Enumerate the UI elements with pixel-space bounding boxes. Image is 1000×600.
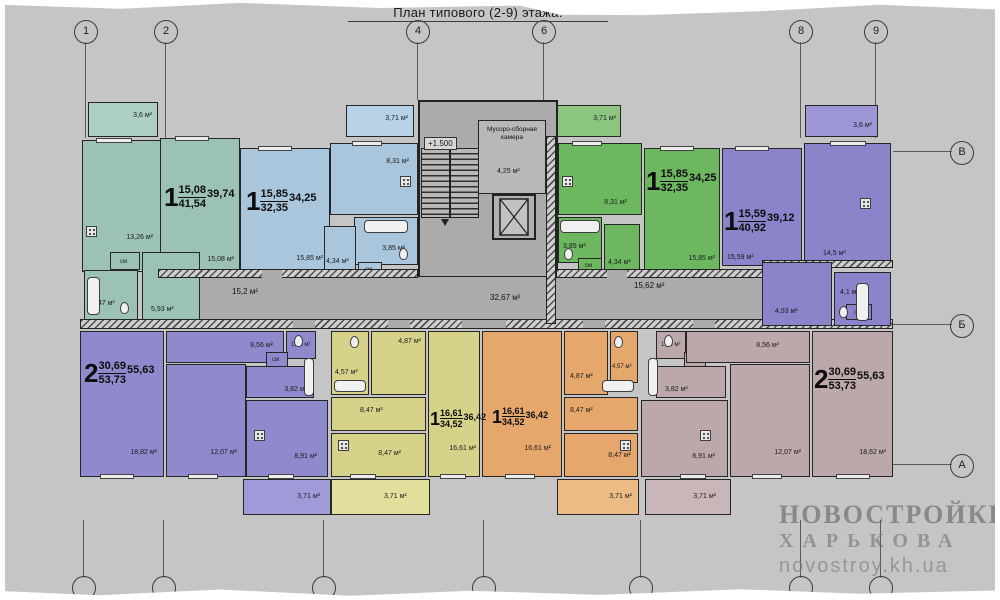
total-area: 32,35	[260, 202, 288, 215]
total-area: 34,52	[502, 417, 525, 427]
rooms-count: 1	[430, 410, 439, 428]
room-area: 3,6 м²	[133, 112, 152, 119]
corridor-area-center: 32,67 м²	[490, 293, 520, 302]
bathtub-icon	[602, 380, 634, 392]
room-area: 3,71 м²	[384, 493, 407, 500]
axis-line-bottom	[83, 520, 84, 578]
toilet-icon	[120, 302, 129, 314]
reduced-area: 39,74	[207, 188, 235, 200]
kitchen-top-mauve2: 8,56 м²	[686, 331, 810, 363]
axis-line-bottom	[483, 520, 484, 578]
window	[505, 474, 535, 479]
stair-direction-arrow	[441, 219, 449, 226]
living-area: 15,85	[260, 188, 288, 202]
axis-circle-4: 4	[406, 20, 430, 44]
room-area: 4,57 м²	[335, 369, 358, 376]
apartment-label-violet2: 2 30,6953,73 55,63	[84, 360, 155, 386]
toilet-icon	[350, 336, 359, 348]
hallway-teal: 5,93 м²	[142, 252, 200, 320]
room-area: 8,56 м²	[250, 342, 273, 349]
door-opening	[693, 320, 715, 328]
reduced-area: 55,63	[127, 364, 155, 376]
axis-line-2	[165, 42, 166, 138]
axis-circle-9: 9	[864, 20, 888, 44]
window	[752, 474, 782, 479]
room-area: 4,93 м²	[775, 308, 798, 315]
bearing-wall	[556, 269, 764, 278]
living-area: 30,69	[828, 366, 856, 380]
bathtub-icon	[648, 358, 658, 396]
total-area: 40,92	[738, 222, 766, 235]
watermark: НОВОСТРОЙКИ ХАРЬКОВА novostroy.kh.ua	[779, 501, 1000, 578]
hallway-purple: 4,93 м²	[762, 262, 832, 326]
room-area: 16,61 м²	[524, 445, 551, 452]
window	[352, 141, 382, 146]
room-area: 8,91 м²	[294, 453, 317, 460]
axis-line-8	[800, 42, 801, 138]
toilet-icon	[564, 248, 573, 260]
room-area: 3,71 м²	[609, 493, 632, 500]
toilet-icon	[614, 336, 623, 348]
room-area: 8,91 м²	[692, 453, 715, 460]
room-area: 12,07 м²	[210, 449, 237, 456]
window	[175, 136, 209, 141]
window	[268, 474, 294, 479]
floor-plan-scan: План типового (2-9) этажа. 1 2 4 6 8 9 В…	[0, 0, 1000, 600]
hall-top-yellow: 4,87 м²	[371, 331, 426, 395]
window	[660, 146, 694, 151]
reduced-area: 39,12	[767, 212, 795, 224]
balcony-purple: 3,6 м²	[805, 105, 878, 137]
corridor	[198, 276, 764, 324]
watermark-line1: НОВОСТРОЙКИ	[779, 501, 1000, 528]
bathtub-icon	[856, 283, 869, 321]
total-area: 41,54	[178, 198, 206, 211]
bathtub-icon	[334, 380, 366, 392]
window	[258, 146, 292, 151]
rooms-count: 1	[646, 168, 659, 194]
room-area: 8,31 м²	[386, 158, 409, 165]
total-area: 34,52	[440, 419, 463, 429]
closet-violet2: см	[266, 352, 288, 367]
watermark-line2: ХАРЬКОВА	[779, 528, 1000, 554]
window	[735, 146, 769, 151]
room-area: 13,26 м²	[126, 234, 153, 241]
garbage-chamber: Мусоро-сборная камера 4,25 м²	[478, 120, 546, 194]
apartment-label-mauve2: 2 30,6953,73 55,63	[814, 366, 885, 392]
room-area: 3,82 м²	[665, 386, 688, 393]
door-opening	[262, 270, 282, 278]
axis-line-4	[417, 42, 418, 100]
axis-circle-b: Б	[950, 314, 974, 338]
room2-violet2: 12,07 м²	[166, 364, 246, 477]
window	[680, 474, 706, 479]
living-area: 30,69	[98, 360, 126, 374]
room-area: 15,59 м²	[727, 254, 754, 261]
balcony-orange: 3,71 м²	[557, 479, 639, 515]
room-area: 3,71 м²	[297, 493, 320, 500]
window	[100, 474, 134, 479]
room-area: см	[120, 259, 127, 265]
closet-teal: см	[110, 252, 140, 270]
hallway-orange: 8,47 м²	[564, 397, 638, 431]
axis-circle-1: 1	[74, 20, 98, 44]
stove-icon	[620, 440, 631, 451]
axis-line-bottom	[640, 520, 641, 578]
corridor-area-left: 15,2 м²	[232, 287, 258, 296]
toilet-icon	[664, 335, 673, 347]
room-area: 8,31 м²	[604, 199, 627, 206]
room-area: 8,47 м²	[378, 450, 401, 457]
room-area: 4,34 м²	[326, 258, 349, 265]
axis-circle-2: 2	[154, 20, 178, 44]
stove-icon	[400, 176, 411, 187]
living-room-orange: 16,61 м²	[482, 331, 562, 477]
rooms-count: 1	[164, 184, 177, 210]
room-area: 14,5 м²	[823, 250, 846, 257]
room-area: 4,57 м²	[612, 364, 631, 370]
apartment-label-blue: 1 15,8532,35 34,25	[246, 188, 317, 214]
rooms-count: 2	[814, 366, 827, 392]
garbage-chamber-label: Мусоро-сборная камера	[483, 126, 541, 142]
axis-line-6	[543, 42, 544, 100]
bearing-wall	[546, 136, 556, 324]
elevator-shaft-icon	[492, 194, 536, 240]
room-area: 18,82 м²	[130, 449, 157, 456]
living-area: 16,61	[440, 408, 463, 419]
room-area: 8,47 м²	[608, 452, 631, 459]
stove-icon	[254, 430, 265, 441]
room-area: 4,87 м²	[570, 373, 593, 380]
room-area: 8,47 м²	[360, 407, 383, 414]
axis-circle-v: В	[950, 141, 974, 165]
reduced-area: 34,25	[289, 192, 317, 204]
axis-circle-6: 6	[532, 20, 556, 44]
apartment-label-orange: 1 16,6134,52 36,42	[492, 406, 548, 428]
room-area: 15,85 м²	[688, 255, 715, 262]
room2-mauve2: 12,07 м²	[730, 364, 810, 477]
room-area: 5,93 м²	[151, 306, 174, 313]
axis-line-v	[893, 151, 952, 152]
bathtub-icon	[87, 277, 100, 315]
total-area: 53,73	[828, 380, 856, 393]
room-area: 16,61 м²	[449, 445, 476, 452]
door-opening	[293, 320, 315, 328]
room-area: 18,62 м²	[859, 449, 886, 456]
room-area: 3,6 м²	[853, 122, 872, 129]
balcony-green: 3,71 м²	[557, 105, 621, 137]
rooms-count: 1	[246, 188, 259, 214]
hallway-mauve2: 3,82 м²	[656, 366, 726, 398]
axis-circle-a: А	[950, 454, 974, 478]
living-room-yellow: 16,61 м²	[428, 331, 480, 477]
apartment-label-teal: 1 15,0841,54 39,74	[164, 184, 235, 210]
apartment-label-purple: 1 15,5940,92 39,12	[724, 208, 795, 234]
watermark-site-url: novostroy.kh.ua	[779, 554, 1000, 578]
rooms-count: 1	[724, 208, 737, 234]
bearing-wall	[158, 269, 418, 278]
window	[350, 474, 376, 479]
stove-icon	[562, 176, 573, 187]
room-area: 3,71 м²	[385, 115, 408, 122]
total-area: 32,35	[660, 182, 688, 195]
rooms-count: 2	[84, 360, 97, 386]
toilet-icon	[399, 248, 408, 260]
stove-icon	[338, 440, 349, 451]
garbage-chamber-area: 4,25 м²	[497, 168, 520, 175]
axis-circle-8: 8	[789, 20, 813, 44]
room-area: 15,85 м²	[296, 255, 323, 262]
entrance-opening	[462, 320, 506, 328]
total-area: 53,73	[98, 374, 126, 387]
hallway-yellow: 8,47 м²	[331, 397, 426, 431]
rooms-count: 1	[492, 408, 501, 426]
stove-icon	[700, 430, 711, 441]
room-area: 15,08 м²	[207, 256, 234, 263]
elevation-mark: +1.500	[424, 137, 457, 150]
axis-line-bottom	[323, 520, 324, 578]
balcony-violet2: 3,71 м²	[243, 479, 331, 515]
window	[836, 474, 870, 479]
window	[188, 474, 218, 479]
bathtub-icon	[364, 220, 408, 233]
torn-edge-right	[995, 0, 1000, 600]
reduced-area: 34,25	[689, 172, 717, 184]
window	[572, 141, 602, 146]
living-area: 16,61	[502, 406, 525, 417]
reduced-area: 55,63	[857, 370, 885, 382]
stove-icon	[860, 198, 871, 209]
room-area: 4,87 м²	[398, 338, 421, 345]
window	[830, 141, 866, 146]
balcony-teal: 3,6 м²	[88, 102, 158, 137]
axis-line-a	[893, 464, 952, 465]
apartment-label-green: 1 15,8532,35 34,25	[646, 168, 717, 194]
room-area: 8,56 м²	[756, 342, 779, 349]
living-area: 15,08	[178, 184, 206, 198]
axis-line-b	[893, 324, 952, 325]
axis-line-1	[85, 42, 86, 138]
door-opening	[388, 320, 410, 328]
kitchen-mauve2: 8,91 м²	[641, 400, 728, 477]
balcony-blue: 3,71 м²	[346, 105, 414, 137]
window	[440, 474, 466, 479]
bathtub-icon	[304, 358, 314, 396]
room-area: 12,07 м²	[774, 449, 801, 456]
balcony-yellow: 3,71 м²	[331, 479, 430, 515]
reduced-area: 36,42	[464, 412, 487, 422]
room-area: 3,71 м²	[693, 493, 716, 500]
room1-violet2: 18,82 м²	[80, 331, 164, 477]
toilet-icon	[294, 335, 303, 347]
bathtub-icon	[560, 220, 600, 233]
corridor-area-right: 15,62 м²	[634, 281, 664, 290]
room-area: см	[272, 357, 279, 363]
living-area: 15,85	[660, 168, 688, 182]
torn-edge-left	[0, 0, 5, 600]
toilet-icon	[839, 306, 848, 318]
door-opening	[607, 270, 627, 278]
room-area: 4,34 м²	[608, 259, 631, 266]
living-area: 15,59	[738, 208, 766, 222]
room-area: 3,71 м²	[593, 115, 616, 122]
hallway-green: 4,34 м²	[604, 224, 640, 275]
kitchen-purple: 14,5 м²	[804, 143, 891, 266]
apartment-label-yellow: 1 16,6134,52 36,42	[430, 408, 486, 430]
reduced-area: 36,42	[526, 410, 549, 420]
balcony-mauve2: 3,71 м²	[645, 479, 731, 515]
stair-divider	[449, 148, 451, 218]
axis-line-bottom	[163, 520, 164, 578]
stove-icon	[86, 226, 97, 237]
room1-mauve2: 18,62 м²	[812, 331, 893, 477]
door-opening	[583, 320, 605, 328]
room-area: 8,47 м²	[570, 407, 593, 414]
window	[96, 138, 132, 143]
